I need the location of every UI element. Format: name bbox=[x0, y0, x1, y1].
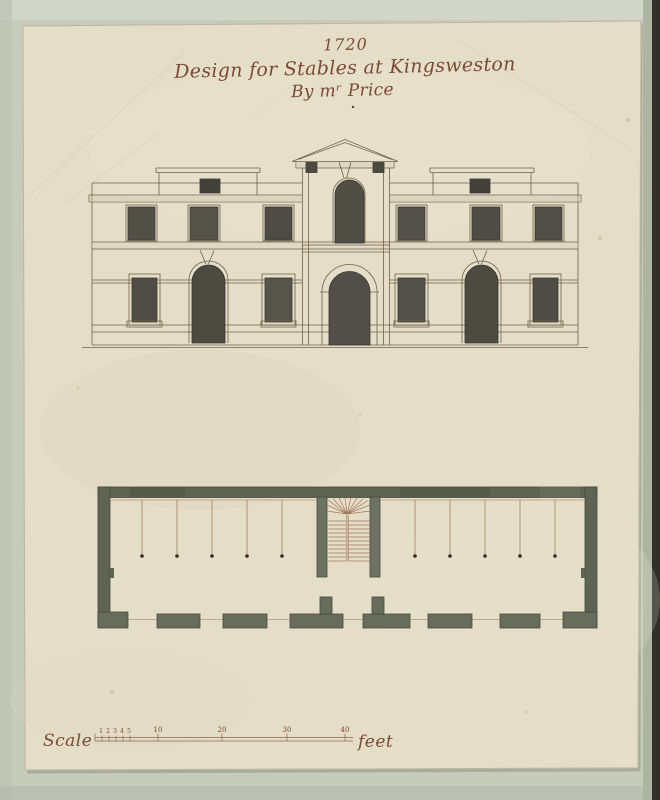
major-tick-label: 10 bbox=[154, 726, 163, 734]
ink-speck bbox=[352, 106, 354, 108]
major-tick-label: 40 bbox=[341, 726, 350, 734]
major-tick-label: 20 bbox=[218, 726, 227, 734]
drawing-sheet bbox=[10, 21, 660, 772]
minor-tick-label: 1 bbox=[99, 728, 103, 735]
cornice-block bbox=[306, 163, 317, 173]
photo-edge-strip bbox=[652, 0, 660, 800]
drawing-scan: 1720 Design for Stables at Kingsweston B… bbox=[0, 0, 660, 800]
cornice-block bbox=[373, 163, 384, 173]
minor-tick-label: 2 bbox=[106, 728, 110, 735]
major-tick-label: 30 bbox=[283, 726, 292, 734]
byline-text: By mʳ Price bbox=[290, 80, 394, 102]
feet-label: feet bbox=[356, 732, 393, 752]
minor-tick-label: 4 bbox=[120, 728, 124, 735]
minor-tick-label: 5 bbox=[127, 728, 131, 735]
date-text: 1720 bbox=[323, 34, 368, 54]
scale-label: Scale bbox=[43, 731, 92, 751]
scanned-page: 1720 Design for Stables at Kingsweston B… bbox=[0, 0, 660, 800]
minor-tick-label: 3 bbox=[113, 728, 117, 735]
